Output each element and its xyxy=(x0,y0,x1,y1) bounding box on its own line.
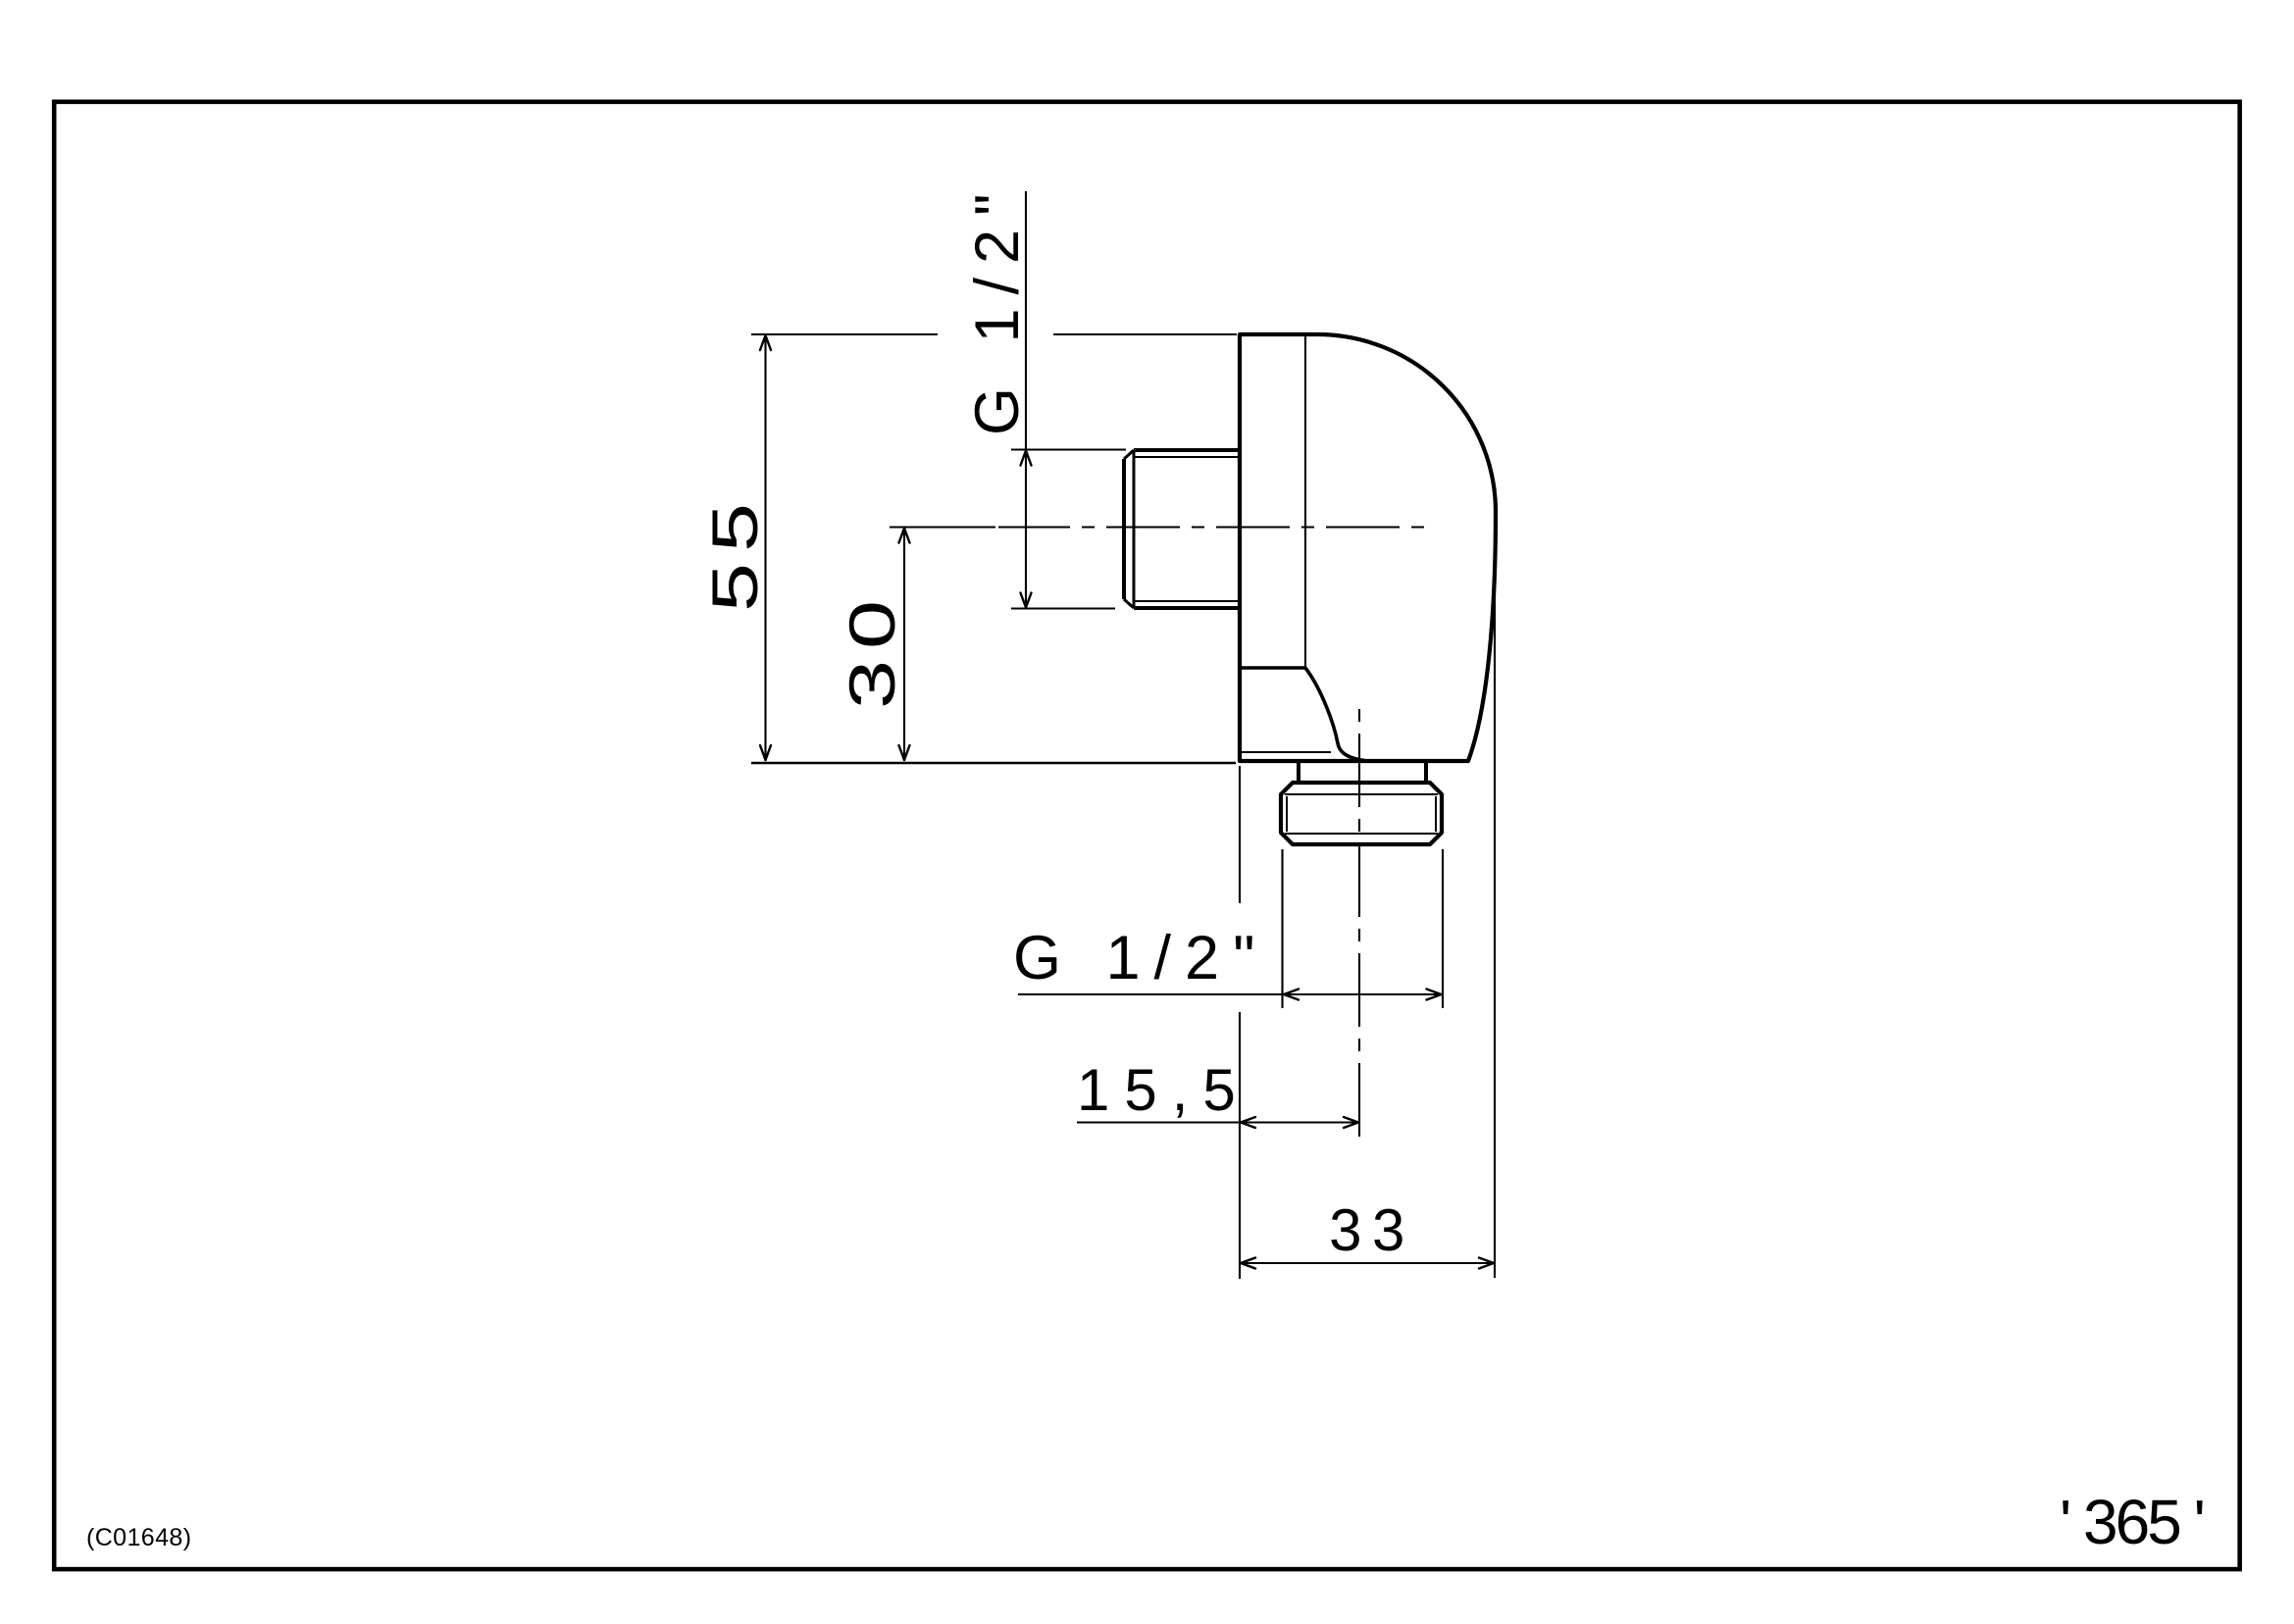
svg-text:(C01648): (C01648) xyxy=(86,1524,191,1551)
svg-text:' 365 ': ' 365 ' xyxy=(2060,1487,2203,1557)
svg-text:15,5: 15,5 xyxy=(1077,1057,1250,1123)
svg-text:G 1/2": G 1/2" xyxy=(1013,924,1268,992)
svg-text:55: 55 xyxy=(698,492,771,612)
svg-text:33: 33 xyxy=(1329,1197,1415,1263)
svg-text:30: 30 xyxy=(836,589,908,709)
svg-text:G 1/2": G 1/2" xyxy=(963,180,1032,435)
